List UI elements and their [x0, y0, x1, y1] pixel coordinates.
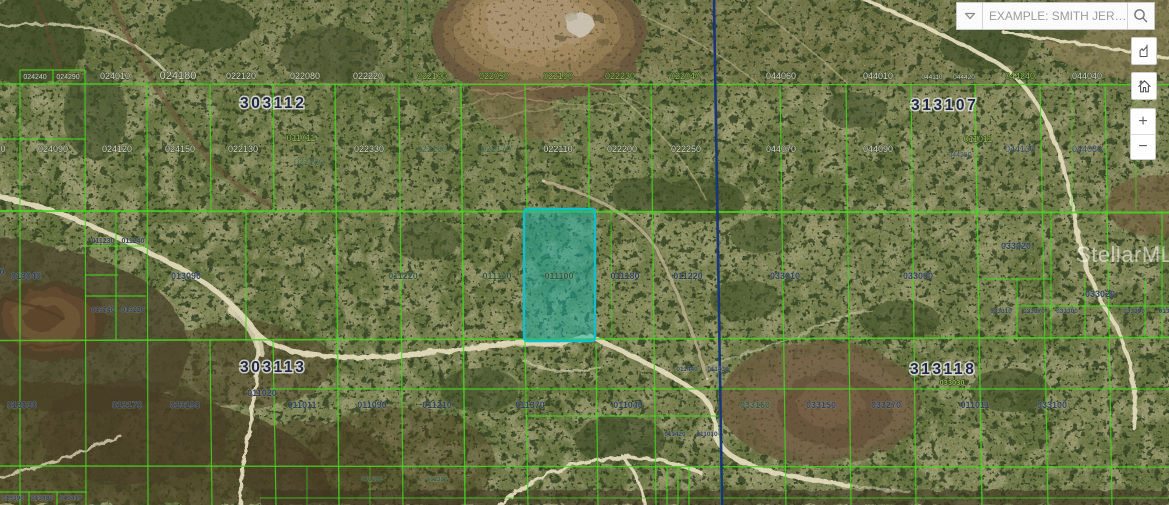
svg-text:011090: 011090 [357, 400, 387, 410]
svg-text:024120: 024120 [102, 144, 132, 154]
svg-text:022130: 022130 [228, 144, 258, 154]
svg-text:013040: 013040 [11, 271, 41, 281]
svg-text:033030: 033030 [939, 378, 964, 387]
svg-text:033390: 033390 [1123, 308, 1145, 315]
svg-text:033: 033 [1159, 308, 1169, 315]
svg-text:011420: 011420 [664, 431, 686, 438]
svg-text:022160: 022160 [417, 144, 447, 154]
svg-text:044090: 044090 [863, 144, 893, 154]
svg-text:022220: 022220 [353, 71, 383, 81]
svg-text:022080: 022080 [290, 71, 320, 81]
svg-text:033270: 033270 [871, 400, 901, 410]
svg-text:044110: 044110 [921, 74, 943, 81]
svg-text:011010: 011010 [696, 431, 718, 438]
svg-text:011011: 011011 [287, 133, 316, 143]
svg-text:024240: 024240 [23, 74, 46, 81]
svg-text:044060: 044060 [766, 71, 796, 81]
svg-text:303112: 303112 [240, 95, 306, 112]
svg-text:013190: 013190 [170, 400, 200, 410]
svg-text:044080: 044080 [1072, 144, 1102, 154]
svg-text:024010: 024010 [100, 71, 130, 81]
svg-text:011011: 011011 [960, 400, 989, 410]
svg-text:033090: 033090 [903, 271, 933, 281]
svg-text:022040: 022040 [670, 71, 700, 81]
svg-text:011440: 011440 [676, 366, 698, 373]
svg-text:033010: 033010 [770, 271, 800, 281]
svg-text:011430: 011430 [707, 366, 729, 373]
svg-text:022330: 022330 [354, 144, 384, 154]
svg-text:013240: 013240 [91, 307, 114, 314]
svg-text:StellarMLS: StellarMLS [1076, 242, 1169, 267]
svg-text:022180: 022180 [294, 157, 324, 167]
svg-text:033100: 033100 [1037, 400, 1067, 410]
svg-text:013390: 013390 [2, 495, 24, 502]
svg-text:044040: 044040 [1072, 71, 1102, 81]
svg-text:011220: 011220 [673, 271, 703, 281]
svg-text:013410: 013410 [60, 495, 82, 502]
svg-text:011320: 011320 [426, 476, 448, 483]
svg-text:0: 0 [0, 267, 5, 277]
svg-text:011140: 011140 [482, 271, 511, 281]
svg-text:0: 0 [0, 144, 5, 154]
svg-text:022110: 022110 [543, 144, 572, 154]
svg-text:033150: 033150 [806, 400, 836, 410]
svg-text:022200: 022200 [607, 144, 637, 154]
svg-text:033310: 033310 [990, 308, 1012, 315]
svg-text:013220: 013220 [121, 307, 144, 314]
svg-text:022120: 022120 [226, 71, 256, 81]
svg-text:022230: 022230 [605, 71, 635, 81]
svg-text:011100: 011100 [544, 271, 573, 281]
svg-text:303113: 303113 [240, 359, 306, 376]
svg-text:024150: 024150 [165, 144, 195, 154]
svg-text:011020: 011020 [247, 388, 277, 398]
svg-text:033020: 033020 [1001, 241, 1031, 251]
svg-text:011220: 011220 [388, 271, 418, 281]
svg-text:044070: 044070 [766, 144, 796, 154]
svg-text:013400: 013400 [31, 495, 53, 502]
svg-text:013170: 013170 [112, 400, 142, 410]
svg-text:033160: 033160 [740, 400, 770, 410]
svg-text:011370: 011370 [515, 400, 545, 410]
svg-text:011290: 011290 [361, 476, 383, 483]
svg-text:011011: 011011 [964, 134, 993, 144]
svg-text:033020: 033020 [1085, 289, 1115, 299]
svg-text:024180: 024180 [160, 70, 197, 82]
svg-text:033370: 033370 [1023, 308, 1045, 315]
svg-text:044250: 044250 [948, 152, 971, 159]
svg-text:044010: 044010 [863, 71, 893, 81]
svg-text:022100: 022100 [417, 71, 447, 81]
svg-text:024090: 024090 [38, 144, 68, 154]
svg-text:011240: 011240 [122, 238, 145, 245]
svg-text:022170: 022170 [481, 144, 511, 154]
svg-text:044240: 044240 [1005, 71, 1035, 81]
svg-text:011210: 011210 [422, 400, 452, 410]
svg-text:024290: 024290 [56, 74, 79, 81]
svg-text:022190: 022190 [543, 71, 573, 81]
svg-text:313107: 313107 [911, 97, 978, 114]
svg-text:313118: 313118 [910, 361, 976, 378]
svg-text:011011: 011011 [287, 400, 316, 410]
svg-text:013090: 013090 [171, 271, 201, 281]
svg-text:044420: 044420 [953, 74, 975, 81]
svg-text:044130: 044130 [1005, 144, 1035, 154]
svg-text:011040: 011040 [613, 400, 643, 410]
svg-text:022250: 022250 [671, 144, 701, 154]
svg-text:033300: 033300 [1056, 308, 1078, 315]
svg-text:011180: 011180 [610, 271, 639, 281]
svg-text:011230: 011230 [92, 238, 115, 245]
svg-text:022050: 022050 [479, 71, 509, 81]
svg-text:013030: 013030 [7, 400, 37, 410]
